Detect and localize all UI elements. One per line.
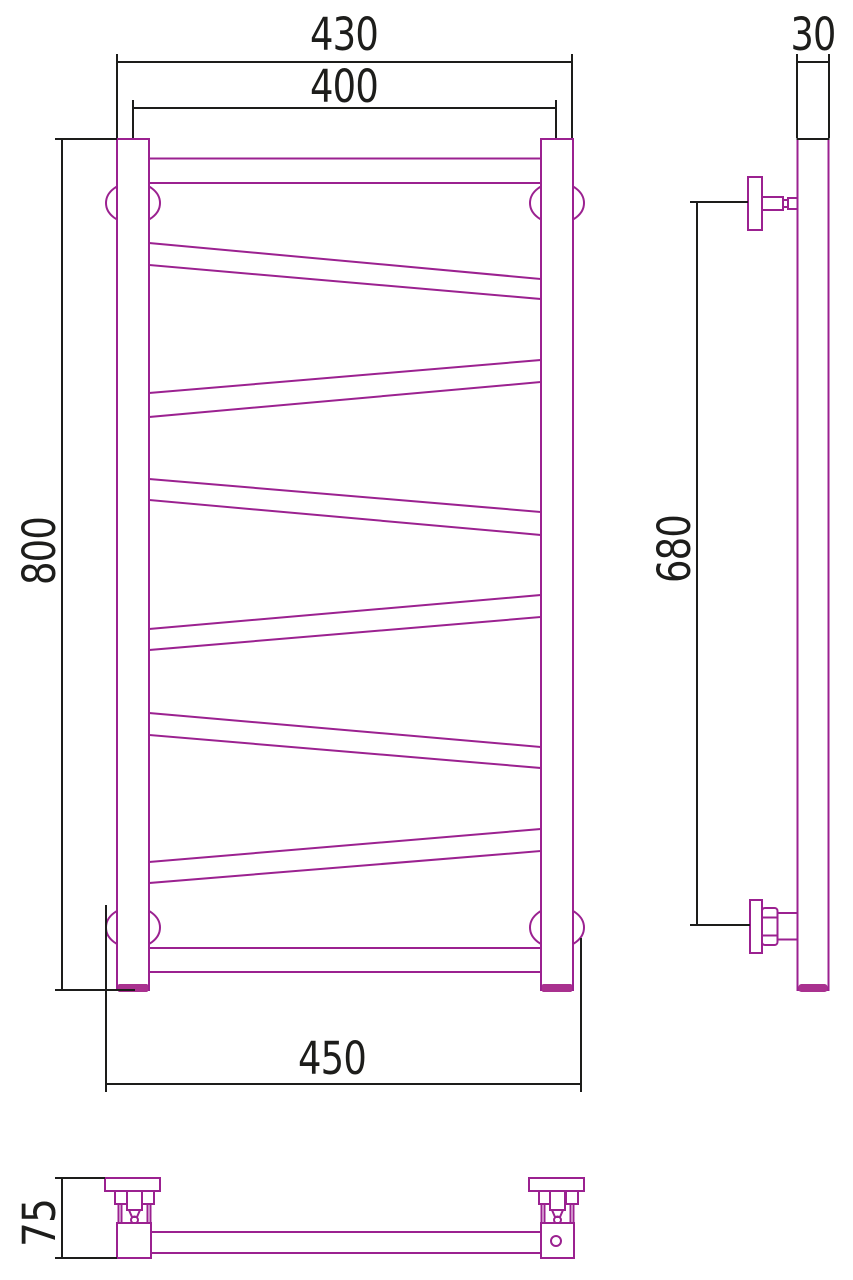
dim-label-400: 400 bbox=[310, 60, 378, 113]
diagonal-rung-1 bbox=[149, 243, 541, 299]
right-arm-side-b bbox=[571, 1204, 574, 1224]
dim-label-800: 800 bbox=[13, 517, 66, 585]
top-bracket-stem bbox=[762, 197, 783, 210]
right-post-end-cap bbox=[542, 984, 572, 992]
side-bottom-bracket bbox=[750, 900, 798, 953]
left-arm-side-b bbox=[148, 1204, 151, 1224]
towel-rail-drawing: 430 400 30 800 680 450 75 bbox=[0, 0, 853, 1280]
dim-label-30: 30 bbox=[791, 8, 836, 61]
side-view bbox=[748, 139, 830, 992]
right-ear-b bbox=[566, 1191, 578, 1204]
left-bracket-stem bbox=[127, 1191, 142, 1210]
diagonal-rung-3 bbox=[149, 479, 541, 535]
left-arm-side-a bbox=[119, 1204, 122, 1224]
top-bracket-flange bbox=[748, 177, 762, 230]
front-view bbox=[106, 139, 584, 992]
bottom-rung bbox=[149, 948, 541, 972]
diagonal-rung-4 bbox=[149, 595, 541, 650]
dim-label-450: 450 bbox=[298, 1032, 366, 1085]
right-wall-plate bbox=[529, 1178, 584, 1191]
diagonal-rung-2 bbox=[149, 360, 541, 417]
left-post-section bbox=[117, 1223, 151, 1258]
right-arm-side-a bbox=[542, 1204, 545, 1224]
diagonal-rung-6 bbox=[149, 829, 541, 883]
right-post bbox=[541, 139, 573, 990]
top-view-left-bracket bbox=[105, 1178, 160, 1258]
top-view-right-bracket bbox=[529, 1178, 584, 1258]
right-post-section bbox=[541, 1223, 574, 1258]
left-post bbox=[117, 139, 149, 990]
dim-label-680: 680 bbox=[648, 515, 701, 583]
bottom-bracket-flange bbox=[750, 900, 762, 953]
top-view bbox=[105, 1178, 584, 1258]
drawing-canvas: 430 400 30 800 680 450 75 bbox=[0, 0, 853, 1280]
side-profile-bar bbox=[798, 139, 829, 990]
top-bracket-tip bbox=[788, 198, 798, 209]
dim-label-75: 75 bbox=[13, 1199, 66, 1247]
left-ear-a bbox=[115, 1191, 127, 1204]
right-bracket-stem bbox=[550, 1191, 565, 1210]
side-top-bracket bbox=[748, 177, 798, 230]
left-wall-plate bbox=[105, 1178, 160, 1191]
dim-label-430: 430 bbox=[310, 8, 378, 61]
top-rung bbox=[149, 159, 541, 184]
bottom-bracket-nut bbox=[762, 908, 778, 945]
left-ear-b bbox=[142, 1191, 154, 1204]
side-profile-end-cap bbox=[799, 984, 828, 992]
diagonal-rung-5 bbox=[149, 713, 541, 768]
